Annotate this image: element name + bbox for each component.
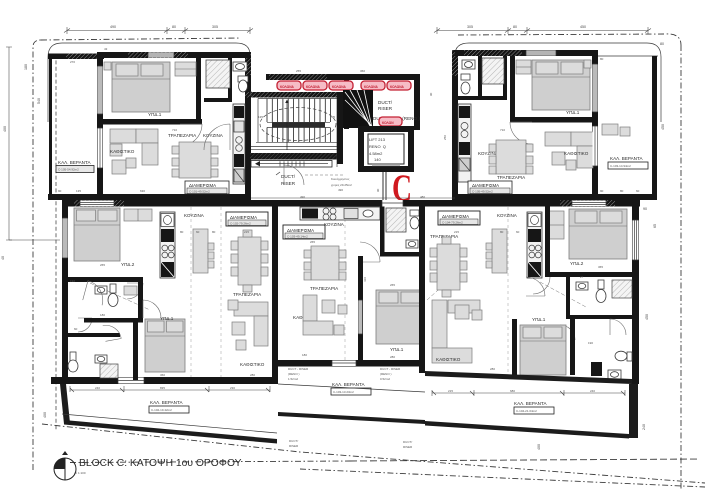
svg-text:BLOCK C: ΚΑΤΟΨΗ 1ου ΟΡΟΦΟΥ: BLOCK C: ΚΑΤΟΨΗ 1ου ΟΡΟΦΟΥ — [79, 458, 242, 469]
svg-text:360: 360 — [360, 69, 365, 73]
svg-text:DUCT/: DUCT/ — [403, 440, 412, 444]
svg-text:C-103-49.14m2: C-103-49.14m2 — [287, 235, 308, 239]
svg-text:Κοινόχρηστος: Κοινόχρηστος — [331, 177, 350, 181]
svg-text:180: 180 — [302, 353, 307, 357]
svg-text:(RENO ): (RENO ) — [288, 372, 300, 376]
svg-text:280: 280 — [390, 355, 395, 359]
svg-text:ΚΟΛΩΝΑ: ΚΟΛΩΝΑ — [390, 85, 405, 89]
svg-text:265: 265 — [310, 240, 315, 244]
svg-text:ΚΑΛ. ΒΕΡΑΝΤΑ: ΚΑΛ. ΒΕΡΑΝΤΑ — [332, 382, 365, 387]
svg-text:ΔΙΑΜΕΡΙΣΜΑ: ΔΙΑΜΕΡΙΣΜΑ — [230, 215, 257, 220]
svg-text:400: 400 — [3, 126, 7, 132]
svg-text:480: 480 — [420, 195, 425, 199]
svg-text:80: 80 — [172, 25, 176, 29]
svg-text:DUCT/: DUCT/ — [289, 439, 298, 443]
svg-text:RENO Q: RENO Q — [369, 144, 386, 149]
svg-text:RISER: RISER — [378, 106, 393, 111]
svg-text:90: 90 — [376, 188, 380, 192]
svg-text:ΚΟΥΖΙΝΑ: ΚΟΥΖΙΝΑ — [184, 213, 205, 218]
svg-text:C-102-79.26m2: C-102-79.26m2 — [230, 222, 251, 226]
svg-text:C-104-21.04m2: C-104-21.04m2 — [516, 409, 537, 413]
svg-text:80: 80 — [212, 230, 216, 234]
svg-text:ΚΟΛΩΝΑ: ΚΟΛΩΝΑ — [280, 85, 295, 89]
svg-text:240: 240 — [95, 386, 100, 390]
svg-text:630: 630 — [140, 189, 145, 193]
svg-text:490: 490 — [110, 25, 116, 29]
svg-text:65: 65 — [653, 224, 657, 228]
svg-text:C-103-13.23m2: C-103-13.23m2 — [333, 390, 354, 394]
svg-text:ΚΟΥΖΙΝΑ: ΚΟΥΖΙΝΑ — [324, 222, 345, 227]
svg-text:490: 490 — [300, 195, 305, 199]
svg-text:ΚΟΛΩΝ: ΚΟΛΩΝ — [382, 121, 394, 125]
svg-text:180: 180 — [100, 313, 105, 317]
svg-text:240: 240 — [590, 389, 595, 393]
svg-text:ΥΠΔ.1: ΥΠΔ.1 — [532, 317, 546, 322]
svg-text:ΚΑΛ. ΒΕΡΑΝΤΑ: ΚΑΛ. ΒΕΡΑΝΤΑ — [610, 156, 643, 161]
svg-text:450: 450 — [661, 124, 665, 130]
svg-text:680: 680 — [510, 389, 515, 393]
svg-text:190: 190 — [588, 341, 593, 345]
svg-text:400: 400 — [537, 444, 541, 450]
svg-text:215: 215 — [244, 230, 249, 234]
svg-text:250: 250 — [443, 135, 447, 140]
svg-text:ΔΙΑΜΕΡΙΣΜΑ: ΔΙΑΜΕΡΙΣΜΑ — [287, 228, 314, 233]
svg-text:ΥΠΔ.1: ΥΠΔ.1 — [148, 112, 162, 117]
svg-text:4.58m2: 4.58m2 — [369, 151, 383, 156]
svg-text:410: 410 — [363, 277, 367, 282]
svg-text:450: 450 — [580, 25, 586, 29]
svg-text:135: 135 — [249, 91, 253, 96]
svg-text:215: 215 — [454, 230, 459, 234]
svg-text:ΚΑΛ. ΒΕΡΑΝΤΑ: ΚΑΛ. ΒΕΡΑΝΤΑ — [58, 160, 91, 165]
svg-text:490: 490 — [338, 188, 343, 192]
svg-text:ac 1:100: ac 1:100 — [74, 471, 86, 475]
svg-text:140: 140 — [374, 157, 381, 162]
svg-text:540: 540 — [37, 98, 41, 104]
svg-text:DUCT/: DUCT/ — [378, 100, 393, 105]
svg-text:LIFT 213: LIFT 213 — [369, 137, 386, 142]
svg-text:270: 270 — [70, 60, 75, 64]
svg-text:265: 265 — [390, 283, 395, 287]
svg-text:ΥΠΔ.1: ΥΠΔ.1 — [160, 316, 174, 321]
svg-text:230: 230 — [230, 386, 235, 390]
svg-text:ΚΟΥΖΙΝΑ: ΚΟΥΖΙΝΑ — [203, 133, 224, 138]
svg-text:ΥΠΔ.1: ΥΠΔ.1 — [566, 110, 580, 115]
svg-text:265: 265 — [100, 263, 105, 267]
svg-text:215: 215 — [448, 389, 453, 393]
svg-text:ΥΠΔ.2: ΥΠΔ.2 — [121, 262, 135, 267]
svg-text:305: 305 — [212, 25, 218, 29]
svg-text:27: 27 — [580, 275, 584, 279]
svg-text:C-103-14.94m2: C-103-14.94m2 — [610, 164, 631, 168]
svg-text:280: 280 — [490, 367, 495, 371]
svg-text:80: 80 — [660, 42, 664, 46]
svg-text:360: 360 — [160, 373, 165, 377]
svg-text:835: 835 — [160, 386, 165, 390]
svg-text:43: 43 — [104, 47, 108, 51]
svg-text:C-102-19.42m2: C-102-19.42m2 — [151, 408, 172, 412]
svg-text:80: 80 — [620, 189, 624, 193]
svg-text:DUCT - RISER: DUCT - RISER — [380, 367, 401, 371]
svg-text:60: 60 — [74, 327, 78, 331]
svg-text:60: 60 — [636, 189, 640, 193]
svg-text:192: 192 — [70, 279, 75, 283]
svg-text:RISER: RISER — [403, 445, 413, 449]
svg-text:80: 80 — [513, 25, 517, 29]
svg-text:ΚΟΛΩΝΑ: ΚΟΛΩΝΑ — [306, 85, 321, 89]
svg-text:280: 280 — [250, 373, 255, 377]
svg-text:ΔΙΑΜΕΡΙΣΜΑ: ΔΙΑΜΕΡΙΣΜΑ — [442, 214, 469, 219]
svg-text:ΤΡΑΠΕΖΑΡΙΑ: ΤΡΑΠΕΖΑΡΙΑ — [310, 286, 339, 291]
svg-text:DUCT - RISER: DUCT - RISER — [288, 367, 309, 371]
svg-text:90: 90 — [58, 189, 62, 193]
svg-text:+05: +05 — [330, 115, 335, 119]
svg-text:RISER: RISER — [289, 444, 299, 448]
svg-text:RISER: RISER — [281, 181, 296, 186]
svg-text:0.52m2: 0.52m2 — [380, 377, 390, 381]
svg-text:710: 710 — [172, 128, 177, 132]
svg-text:1.52m2: 1.52m2 — [288, 377, 298, 381]
svg-text:ΤΡΑΠΕΖΑΡΙΑ: ΤΡΑΠΕΖΑΡΙΑ — [168, 133, 197, 138]
svg-text:ΤΡΑΠΕΖΑΡΙΑ: ΤΡΑΠΕΖΑΡΙΑ — [497, 175, 526, 180]
svg-text:ΚΟΛΩΝΑ: ΚΟΛΩΝΑ — [364, 85, 379, 89]
svg-text:DUCT/: DUCT/ — [281, 174, 296, 179]
svg-text:90: 90 — [643, 207, 647, 211]
svg-text:χώρες 29.25m2: χώρες 29.25m2 — [331, 183, 352, 187]
svg-text:60: 60 — [516, 230, 520, 234]
svg-text:40: 40 — [1, 256, 5, 260]
svg-text:135: 135 — [76, 189, 81, 193]
svg-text:240: 240 — [642, 424, 646, 430]
svg-text:ΚΑΘΙΣΤΙΚΟ: ΚΑΘΙΣΤΙΚΟ — [110, 149, 135, 154]
svg-text:60: 60 — [196, 230, 200, 234]
svg-text:180: 180 — [24, 64, 28, 70]
svg-text:ΤΡΑΠΕΖΑΡΙΑ: ΤΡΑΠΕΖΑΡΙΑ — [233, 292, 262, 297]
svg-text:305: 305 — [467, 25, 473, 29]
svg-text:C-105-49.52m2: C-105-49.52m2 — [472, 190, 493, 194]
svg-text:C-101-49.52m2: C-101-49.52m2 — [189, 190, 210, 194]
svg-text:ΚΟΥΖΙΝΑ: ΚΟΥΖΙΝΑ — [497, 213, 518, 218]
svg-text:ΔΙΑΜΕΡΙΣΜΑ: ΔΙΑΜΕΡΙΣΜΑ — [189, 183, 216, 188]
svg-text:90: 90 — [600, 189, 604, 193]
svg-text:ΚΑΘΙΣΤΙΚΟ: ΚΑΘΙΣΤΙΚΟ — [436, 357, 461, 362]
svg-text:ΚΑΘΙΣΤΙΚΟ: ΚΑΘΙΣΤΙΚΟ — [240, 362, 265, 367]
svg-text:ΚΑΛ. ΒΕΡΑΝΤΑ: ΚΑΛ. ΒΕΡΑΝΤΑ — [514, 401, 547, 406]
svg-text:80: 80 — [500, 230, 504, 234]
svg-text:80: 80 — [180, 230, 184, 234]
svg-text:90: 90 — [429, 92, 433, 96]
svg-text:ΚΑΘΙΣΤΙΚΟ: ΚΑΘΙΣΤΙΚΟ — [564, 151, 589, 156]
svg-text:80: 80 — [600, 57, 604, 61]
svg-text:(RENO ): (RENO ) — [380, 372, 392, 376]
svg-text:365: 365 — [598, 265, 603, 269]
svg-text:ΥΠΔ.1: ΥΠΔ.1 — [390, 347, 404, 352]
svg-text:710: 710 — [500, 128, 505, 132]
svg-text:ΔΙΑΜΕΡΙΣΜΑ: ΔΙΑΜΕΡΙΣΜΑ — [472, 183, 499, 188]
svg-text:C-105-54.92m2: C-105-54.92m2 — [58, 168, 79, 172]
svg-text:ΚΟΛΩΝΑ: ΚΟΛΩΝΑ — [332, 85, 347, 89]
svg-text:450: 450 — [645, 314, 649, 320]
svg-text:255: 255 — [296, 69, 301, 73]
svg-text:C-104-79.26m2: C-104-79.26m2 — [442, 221, 463, 225]
svg-text:135: 135 — [258, 115, 263, 119]
svg-text:ΥΠΔ.2: ΥΠΔ.2 — [570, 261, 584, 266]
svg-text:ΚΑΛ. ΒΕΡΑΝΤΑ: ΚΑΛ. ΒΕΡΑΝΤΑ — [150, 400, 183, 405]
svg-text:400: 400 — [43, 412, 47, 418]
